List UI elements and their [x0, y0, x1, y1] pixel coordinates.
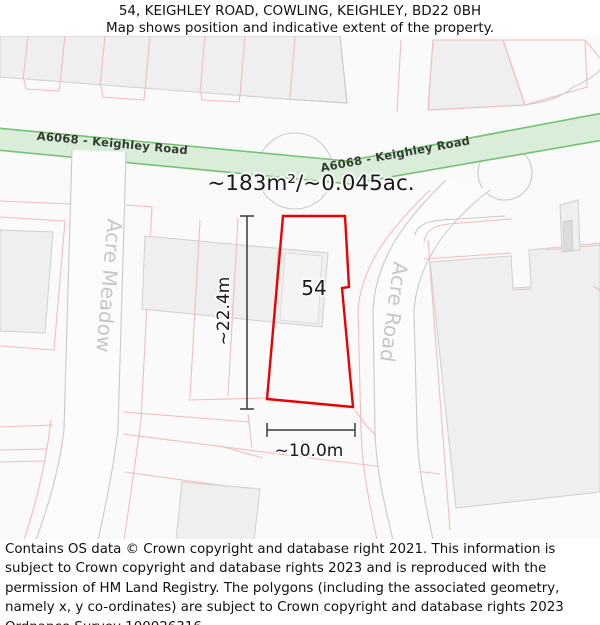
building-west	[0, 230, 53, 333]
page-title: 54, KEIGHLEY ROAD, COWLING, KEIGHLEY, BD…	[0, 3, 600, 20]
height-dimension-label: ~22.4m	[214, 277, 234, 346]
parcel-south-central	[176, 482, 260, 539]
map-svg: Acre Meadow Acre Road A6068 - Keighley R…	[0, 36, 600, 539]
area-label: ~183m²/~0.045ac.	[207, 171, 414, 196]
page-header: 54, KEIGHLEY ROAD, COWLING, KEIGHLEY, BD…	[0, 3, 600, 36]
page-subtitle: Map shows position and indicative extent…	[0, 20, 600, 37]
width-dimension-label: ~10.0m	[275, 441, 344, 461]
map-canvas: Acre Meadow Acre Road A6068 - Keighley R…	[0, 36, 600, 538]
property-map-page: 54, KEIGHLEY ROAD, COWLING, KEIGHLEY, BD…	[0, 0, 600, 625]
plot-number-label: 54	[301, 276, 326, 300]
copyright-footer: Contains OS data © Crown copyright and d…	[0, 540, 600, 625]
